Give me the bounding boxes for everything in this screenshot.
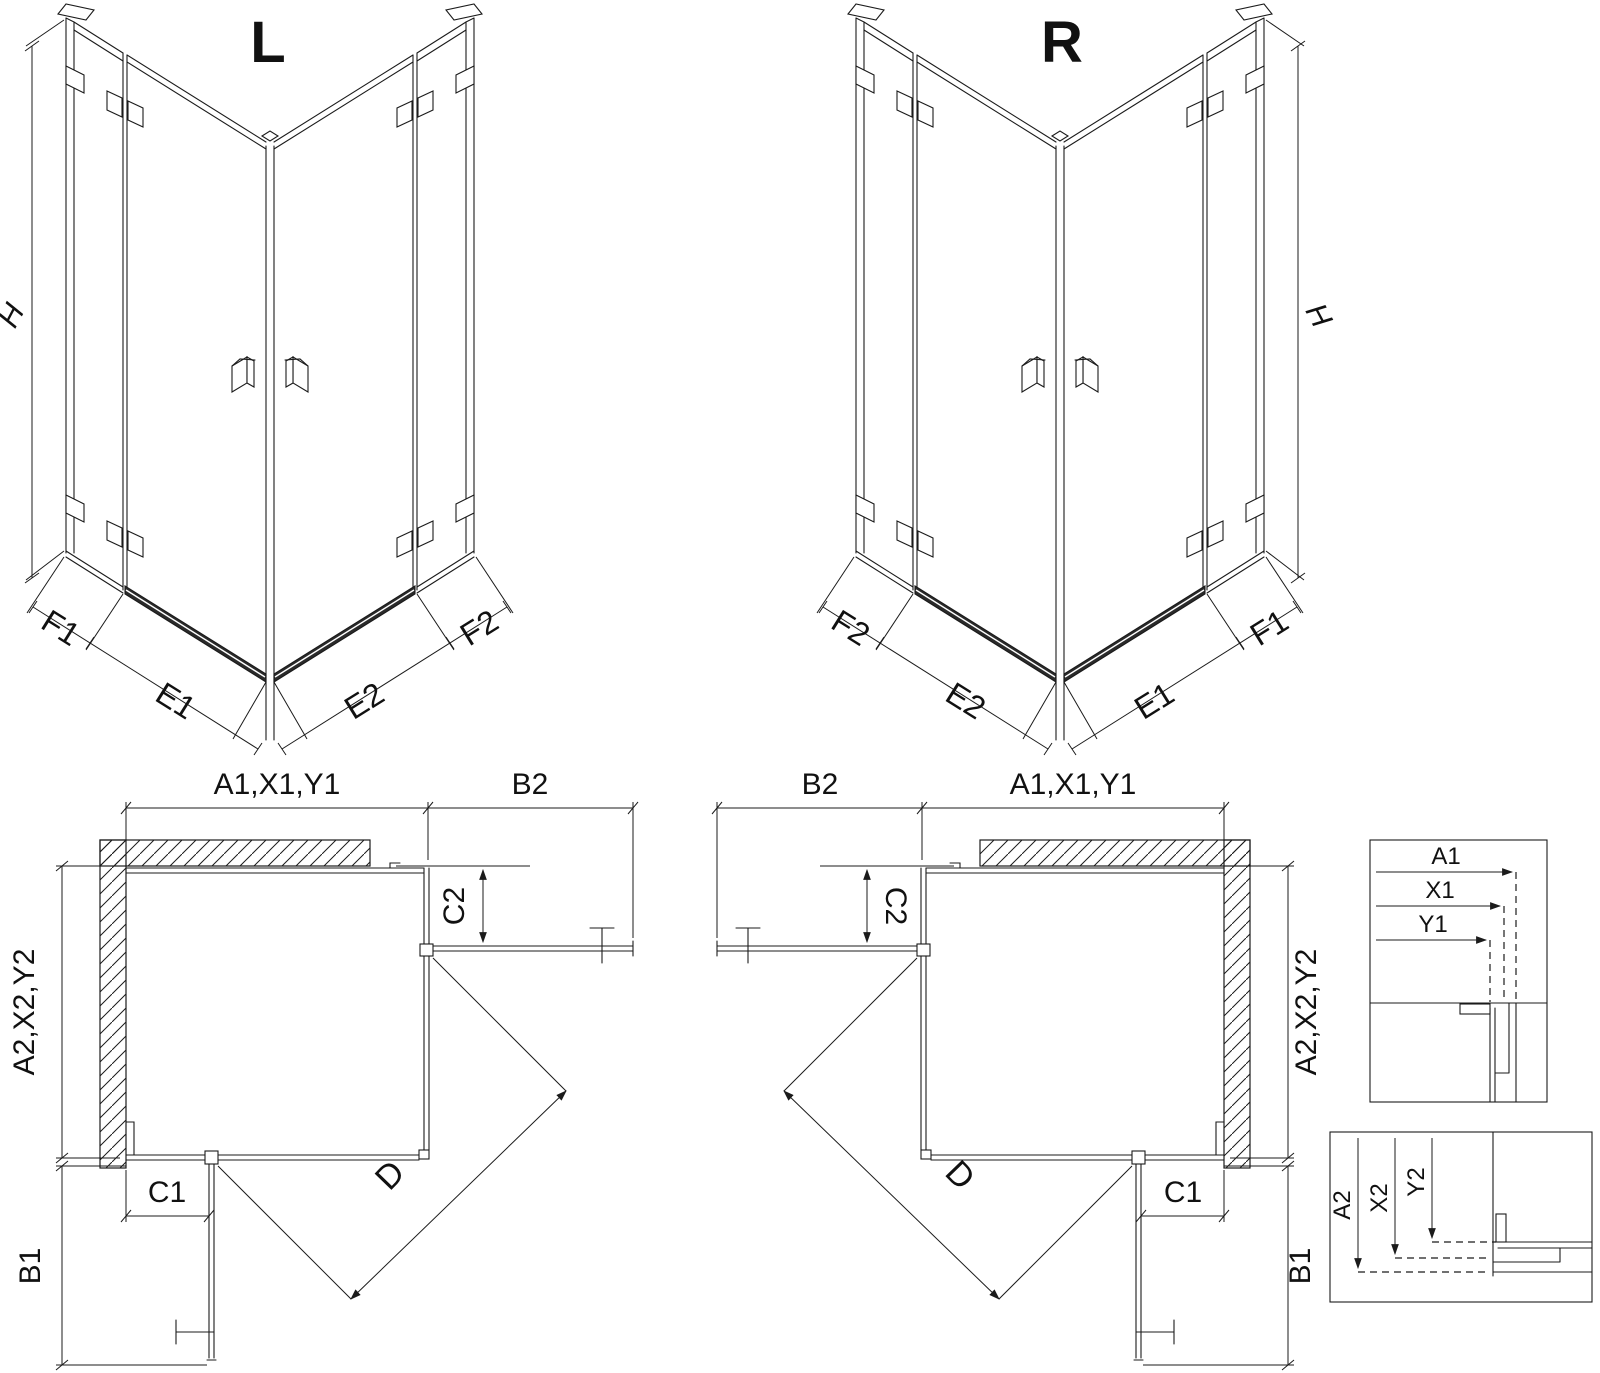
dim-label-e1: E1 bbox=[1128, 675, 1180, 726]
wall-bracket-top-icon bbox=[1236, 4, 1272, 20]
detail-label-x1: X1 bbox=[1425, 877, 1454, 904]
door-pivot bbox=[420, 944, 433, 956]
door-open-right bbox=[433, 941, 633, 956]
detail-label-y1: Y1 bbox=[1418, 911, 1447, 938]
dim-label-e2: E2 bbox=[940, 675, 992, 726]
door-pivot bbox=[917, 944, 930, 956]
wall-top bbox=[100, 840, 370, 866]
dim-label-a2x2y2: A2,X2,Y2 bbox=[1290, 949, 1323, 1076]
dim-label-b2: B2 bbox=[802, 768, 839, 801]
detail-box-side-widths: A2 X2 Y2 bbox=[1329, 1132, 1592, 1302]
shower-enclosure-technical-drawing: L bbox=[0, 0, 1600, 1373]
dim-label-b1: B1 bbox=[14, 1248, 47, 1285]
plan-view-right: D B2 A1,X1,Y1 A2,X2,Y2 B1 C1 C2 bbox=[712, 768, 1323, 1370]
dim-label-c2: C2 bbox=[879, 887, 912, 925]
iso-view-right: R bbox=[817, 4, 1338, 755]
wall-bracket-top-icon bbox=[446, 4, 482, 20]
dim-label-e2: E2 bbox=[338, 675, 390, 726]
dim-label-a1x1y1: A1,X1,Y1 bbox=[1010, 768, 1137, 801]
detail-box-top-widths: A1 X1 Y1 bbox=[1370, 840, 1547, 1102]
dim-label-c1: C1 bbox=[1164, 1176, 1202, 1209]
dim-label-c1: C1 bbox=[148, 1176, 186, 1209]
dim-label-h: H bbox=[1299, 298, 1338, 333]
view-title-left: L bbox=[250, 10, 285, 75]
door-open-left bbox=[717, 941, 917, 956]
dim-label-a1x1y1: A1,X1,Y1 bbox=[214, 768, 341, 801]
door-open-bottom bbox=[207, 1164, 216, 1360]
detail-label-y2: Y2 bbox=[1403, 1167, 1430, 1196]
wall-left bbox=[100, 840, 126, 1168]
dim-label-b1: B1 bbox=[1284, 1248, 1317, 1285]
door-handle-icon bbox=[1136, 1320, 1174, 1344]
detail-label-x2: X2 bbox=[1366, 1183, 1393, 1212]
dim-label-f1: F1 bbox=[35, 603, 86, 653]
door-pivot bbox=[1132, 1151, 1145, 1164]
drawing-sheet: L bbox=[0, 0, 1600, 1373]
plan-view-left: D A1,X1,Y1 B2 A2,X2,Y2 B1 C1 C2 bbox=[8, 768, 638, 1370]
wall-bracket-top-icon bbox=[848, 4, 884, 20]
door-pivot bbox=[205, 1151, 218, 1164]
dim-label-e1: E1 bbox=[150, 675, 202, 726]
wall-bracket-top-icon bbox=[58, 4, 94, 20]
detail-label-a2: A2 bbox=[1329, 1190, 1356, 1219]
wall-right bbox=[1224, 840, 1250, 1168]
door-open-bottom bbox=[1134, 1164, 1143, 1360]
door-handle-icon bbox=[176, 1320, 214, 1344]
dim-label-f2: F2 bbox=[825, 603, 876, 653]
iso-view-left: L bbox=[0, 4, 513, 755]
dim-label-f1: F1 bbox=[1244, 603, 1295, 653]
dim-label-b2: B2 bbox=[512, 768, 549, 801]
dim-label-c2: C2 bbox=[438, 887, 471, 925]
view-title-right: R bbox=[1041, 10, 1083, 75]
dim-label-h: H bbox=[0, 298, 31, 333]
wall-top bbox=[980, 840, 1250, 866]
dim-label-a2x2y2: A2,X2,Y2 bbox=[8, 949, 41, 1076]
dim-label-f2: F2 bbox=[454, 603, 505, 653]
detail-label-a1: A1 bbox=[1431, 843, 1460, 870]
